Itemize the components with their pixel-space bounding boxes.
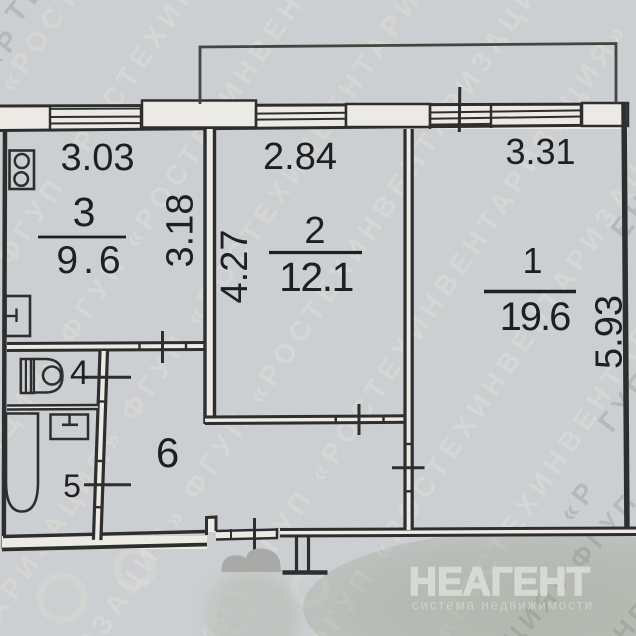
svg-text:5.93: 5.93: [589, 295, 631, 369]
svg-text:3.18: 3.18: [160, 194, 202, 268]
svg-text:4: 4: [70, 354, 89, 392]
svg-text:2: 2: [304, 210, 325, 252]
svg-text:5: 5: [63, 468, 81, 504]
svg-text:3.31: 3.31: [505, 131, 575, 172]
svg-text:3: 3: [73, 189, 96, 235]
svg-text:1: 1: [522, 240, 542, 281]
svg-text:система недвижимости: система недвижимости: [412, 598, 592, 613]
svg-text:19.6: 19.6: [500, 295, 571, 339]
svg-text:2.84: 2.84: [263, 136, 337, 178]
svg-text:9.6: 9.6: [56, 239, 125, 282]
svg-text:3.03: 3.03: [61, 137, 135, 179]
svg-text:4.27: 4.27: [214, 230, 256, 304]
svg-text:12.1: 12.1: [279, 254, 353, 300]
svg-text:6: 6: [156, 429, 179, 476]
